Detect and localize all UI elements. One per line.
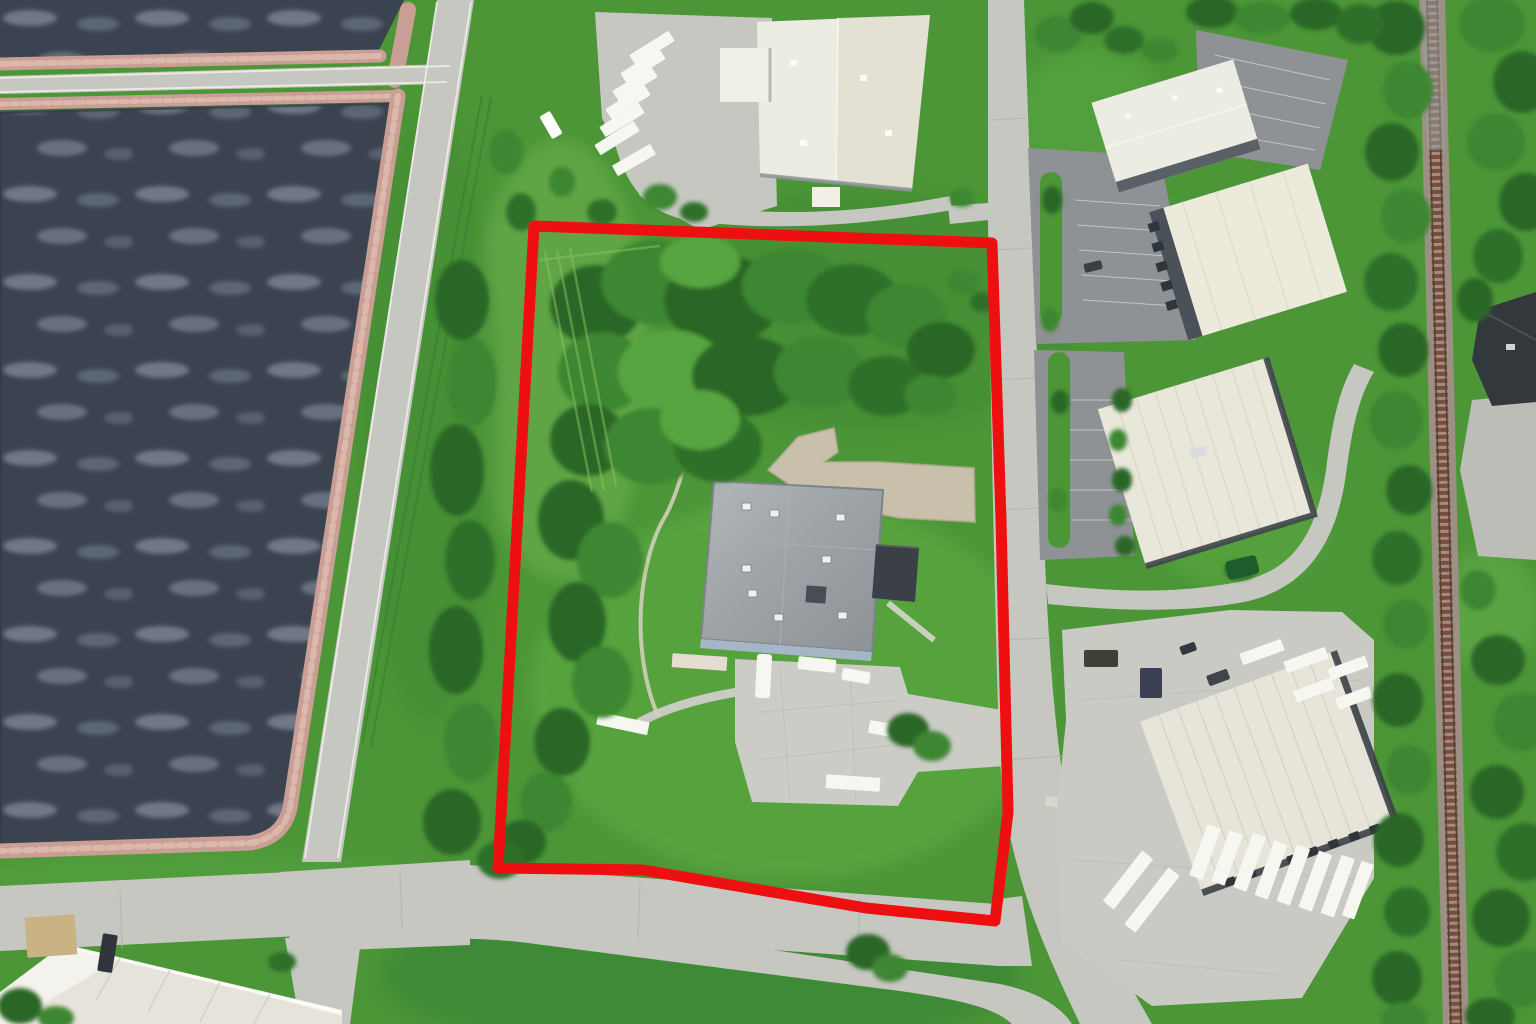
parcel-building-annex [872,545,919,602]
aerial-photo: Aerial photograph of an industrial park … [0,0,1536,1024]
